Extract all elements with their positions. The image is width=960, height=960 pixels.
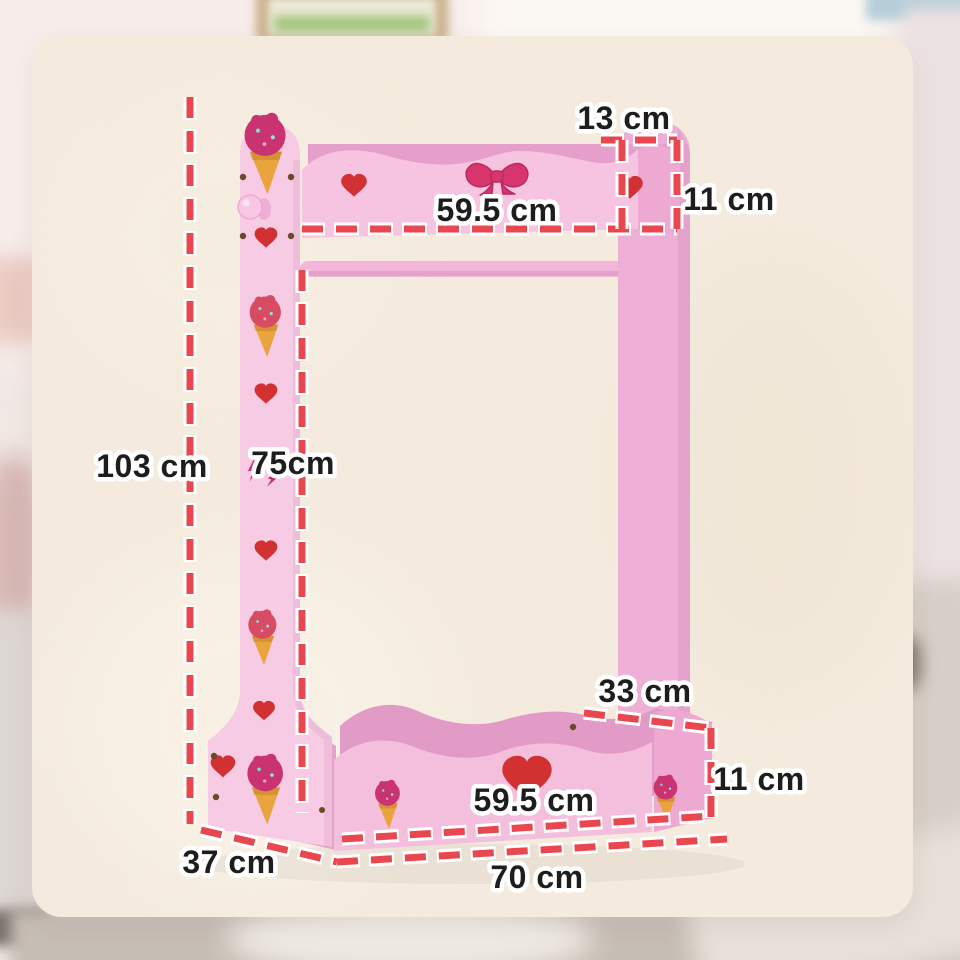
dim-label-base-depth: 37 cm: [182, 844, 275, 880]
dim-label-top-depth: 13 cm: [577, 100, 670, 136]
dim-label-top-shelf-length: 59.5 cm: [437, 192, 558, 228]
dim-label-base-width: 70 cm: [490, 859, 583, 895]
screw-dot: [211, 753, 217, 759]
dim-label-bottom-shelf-length: 59.5 cm: [474, 782, 595, 818]
clothes-rack-diagram: 13 cm 11 cm 59.5 cm 103 cm 75cm 33 cm 11…: [0, 0, 960, 960]
dim-label-hanging-height: 75cm: [251, 445, 335, 481]
product-dimension-image: 13 cm 11 cm 59.5 cm 103 cm 75cm 33 cm 11…: [0, 0, 960, 960]
dim-label-overall-height: 103 cm: [96, 448, 208, 484]
screw-dot: [240, 233, 246, 239]
screw-dot: [213, 794, 219, 800]
dim-label-top-side-height: 11 cm: [683, 181, 774, 217]
hanging-rod: [300, 261, 642, 277]
dim-label-bottom-depth: 33 cm: [598, 673, 691, 709]
screw-dot: [288, 174, 294, 180]
screw-dot: [240, 174, 246, 180]
hook-peg: [238, 195, 271, 220]
screw-dot: [319, 807, 325, 813]
screw-dot: [288, 233, 294, 239]
screw-dot: [570, 724, 576, 730]
dim-label-bottom-side-height: 11 cm: [713, 761, 804, 797]
